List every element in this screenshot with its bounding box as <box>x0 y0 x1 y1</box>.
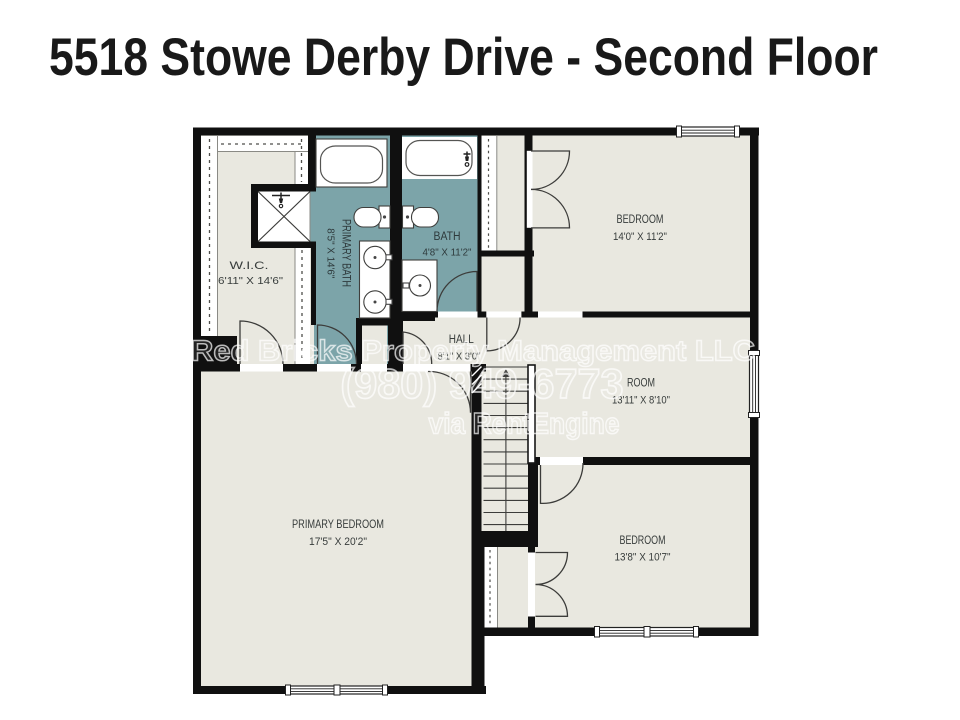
svg-text:8'5" X 14'6": 8'5" X 14'6" <box>324 228 336 278</box>
svg-text:PRIMARY BEDROOM: PRIMARY BEDROOM <box>292 519 384 531</box>
svg-text:14'0" X 11'2": 14'0" X 11'2" <box>613 231 667 243</box>
svg-text:6'11" X 14'6": 6'11" X 14'6" <box>218 275 283 287</box>
svg-text:17'5" X 20'2": 17'5" X 20'2" <box>309 536 367 548</box>
svg-text:ROOM: ROOM <box>627 378 655 390</box>
svg-text:W.I.C.: W.I.C. <box>230 260 269 272</box>
svg-text:BEDROOM: BEDROOM <box>620 535 666 547</box>
svg-text:13'8" X 10'7": 13'8" X 10'7" <box>615 552 671 564</box>
svg-text:(980) 949-6773: (980) 949-6773 <box>341 360 624 407</box>
svg-text:5518 Stowe Derby Drive - Secon: 5518 Stowe Derby Drive - Second Floor <box>49 28 878 87</box>
svg-text:PRIMARY BATH: PRIMARY BATH <box>340 219 352 287</box>
svg-text:via RentEngine: via RentEngine <box>429 408 620 441</box>
svg-text:BEDROOM: BEDROOM <box>617 214 664 226</box>
svg-text:4'8" X 11'2": 4'8" X 11'2" <box>423 247 472 259</box>
svg-text:BATH: BATH <box>434 231 461 243</box>
